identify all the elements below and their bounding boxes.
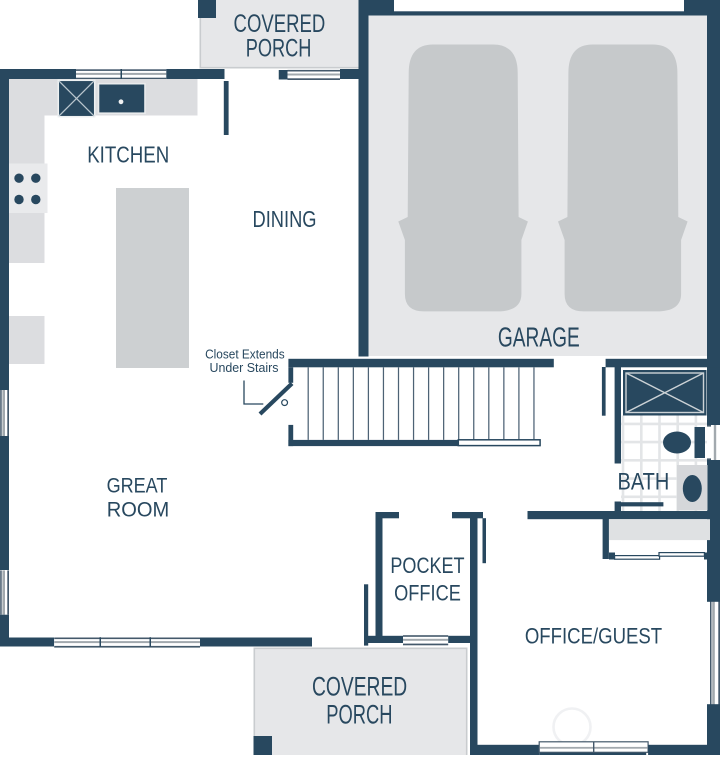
svg-text:GREAT: GREAT — [107, 474, 168, 498]
svg-text:POCKET: POCKET — [390, 553, 464, 578]
svg-text:DINING: DINING — [253, 206, 317, 232]
svg-text:OFFICE/GUEST: OFFICE/GUEST — [525, 624, 662, 649]
svg-text:Under Stairs: Under Stairs — [210, 360, 279, 375]
svg-text:PORCH: PORCH — [326, 700, 392, 730]
svg-text:PORCH: PORCH — [246, 35, 312, 63]
svg-text:BATH: BATH — [618, 469, 670, 496]
svg-text:Closet Extends: Closet Extends — [205, 346, 285, 361]
svg-text:KITCHEN: KITCHEN — [87, 142, 169, 168]
svg-text:COVERED: COVERED — [312, 671, 407, 701]
svg-text:GARAGE: GARAGE — [498, 322, 580, 353]
svg-text:OFFICE: OFFICE — [394, 581, 461, 606]
svg-text:ROOM: ROOM — [107, 498, 170, 522]
